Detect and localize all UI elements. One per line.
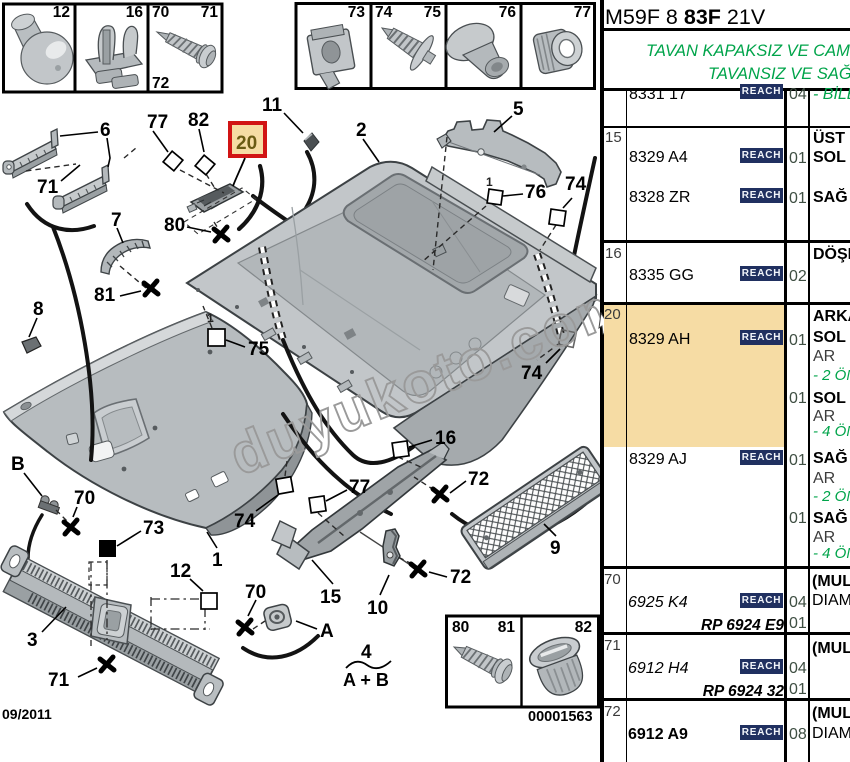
svg-text:70: 70 (152, 4, 169, 21)
svg-text:09/2011: 09/2011 (2, 706, 52, 722)
svg-text:7: 7 (111, 210, 122, 231)
svg-text:00001563: 00001563 (528, 709, 593, 725)
svg-text:11: 11 (262, 95, 283, 116)
svg-text:75: 75 (248, 339, 270, 360)
svg-text:71: 71 (201, 4, 219, 21)
svg-text:77: 77 (574, 4, 591, 21)
svg-text:74: 74 (375, 4, 393, 21)
svg-text:73: 73 (348, 4, 366, 21)
svg-text:81: 81 (498, 619, 516, 636)
svg-text:8: 8 (33, 299, 44, 320)
svg-text:B: B (11, 454, 25, 475)
svg-text:A + B: A + B (343, 670, 389, 690)
svg-text:74: 74 (565, 174, 587, 195)
svg-text:80: 80 (164, 215, 185, 236)
svg-text:1: 1 (207, 311, 214, 325)
svg-text:10: 10 (367, 598, 388, 619)
svg-text:76: 76 (525, 182, 546, 203)
svg-text:12: 12 (53, 4, 70, 21)
svg-text:73: 73 (143, 518, 164, 539)
svg-text:1: 1 (212, 550, 223, 571)
svg-text:72: 72 (450, 567, 471, 588)
svg-text:1: 1 (486, 175, 493, 189)
svg-text:16: 16 (126, 4, 144, 21)
svg-text:70: 70 (74, 488, 95, 509)
svg-text:4: 4 (361, 642, 372, 663)
svg-text:82: 82 (575, 619, 592, 636)
svg-text:6: 6 (100, 120, 111, 141)
svg-text:3: 3 (27, 630, 38, 651)
svg-text:12: 12 (170, 561, 191, 582)
svg-text:77: 77 (349, 477, 370, 498)
svg-text:70: 70 (245, 582, 266, 603)
svg-text:77: 77 (147, 112, 168, 133)
svg-text:76: 76 (499, 4, 517, 21)
svg-text:16: 16 (435, 428, 456, 449)
svg-text:9: 9 (550, 538, 561, 559)
svg-text:82: 82 (188, 110, 209, 131)
svg-text:A: A (320, 621, 334, 642)
svg-text:5: 5 (513, 99, 524, 120)
svg-text:81: 81 (94, 285, 116, 306)
svg-text:72: 72 (468, 469, 489, 490)
svg-text:71: 71 (37, 177, 59, 198)
svg-text:15: 15 (320, 587, 342, 608)
svg-text:71: 71 (48, 670, 70, 691)
svg-text:20: 20 (236, 133, 257, 154)
svg-text:75: 75 (424, 4, 442, 21)
svg-text:2: 2 (356, 120, 367, 141)
svg-text:74: 74 (234, 511, 256, 532)
svg-text:80: 80 (452, 619, 469, 636)
svg-text:72: 72 (152, 75, 169, 92)
